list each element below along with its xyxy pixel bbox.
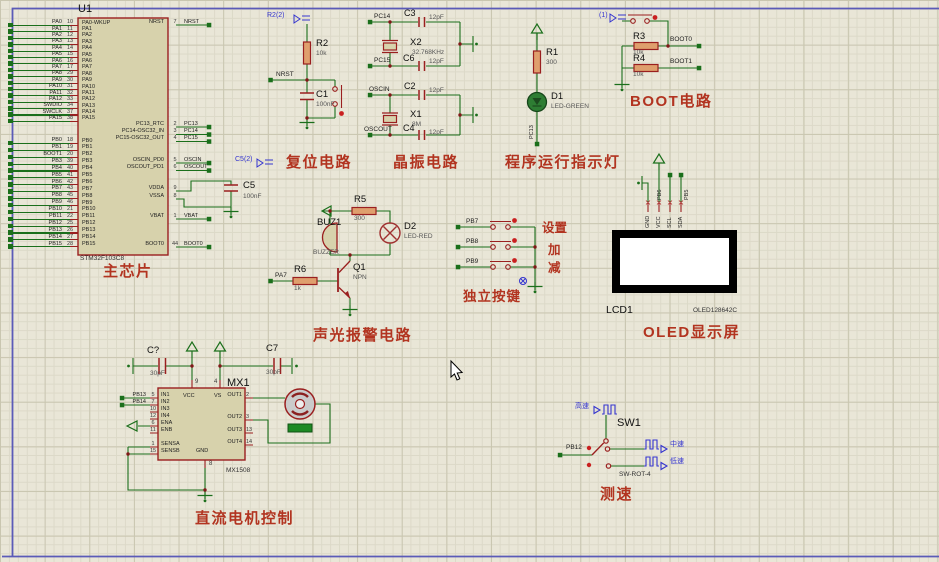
capacitor-c2-ref: C2 xyxy=(404,82,416,91)
resistor-r6 xyxy=(293,278,317,285)
pin-number: 41 xyxy=(63,172,77,178)
net-label: PB14 xyxy=(20,234,62,240)
pin-name: PB12 xyxy=(82,220,95,226)
net-label-pc13-vertical: PC13 xyxy=(529,125,535,139)
pin-number: 43 xyxy=(63,185,77,191)
led-d1-ref: D1 xyxy=(551,92,563,102)
speed-label-high: 高速 xyxy=(575,403,589,410)
pin-number: 21 xyxy=(63,206,77,212)
capacitor-c4 xyxy=(419,130,425,140)
chip-right-row: VSSA8 xyxy=(88,193,228,201)
section-title-alarm: 声光报警电路 xyxy=(313,328,412,344)
capacitor-c3 xyxy=(419,17,425,27)
transistor-q1-val: NPN xyxy=(353,275,367,282)
section-title-speed: 测速 xyxy=(600,487,633,503)
pin-number: 32 xyxy=(63,90,77,96)
chip-pa-rows: PA0 10 PA0-WKUP PA1 11 PA1 PA2 12 PA2 PA… xyxy=(8,21,168,123)
net-label-oled-scl: PB6 xyxy=(657,190,663,200)
crystal-x2-val: 32.768KHz xyxy=(412,50,444,57)
motor-label-plate xyxy=(288,424,312,432)
chip-mx1-part: MX1508 xyxy=(226,468,250,475)
origin-marker xyxy=(520,278,527,285)
net-label: BOOT1 xyxy=(20,151,62,157)
resistor-r5-ref: R5 xyxy=(354,195,366,205)
net-label: PB1 xyxy=(20,144,62,150)
net-label: PA7 xyxy=(20,64,62,70)
resistor-r3-ref: R3 xyxy=(633,32,645,42)
chip-part: STM32F103C8 xyxy=(80,256,124,263)
pin-name: PA7 xyxy=(82,64,92,70)
net-label: PB8 xyxy=(20,192,62,198)
mx1-gnd-num: 8 xyxy=(209,461,212,467)
chip-right-row: OSCOUT_PD16OSCOUT xyxy=(88,164,228,172)
wire-flag-r2: R2(2) xyxy=(267,12,285,19)
pin-number: 16 xyxy=(63,58,77,64)
crystal-x1-ref: X1 xyxy=(410,110,422,120)
mx1-pin-row: OUT313 xyxy=(200,427,260,434)
schematic-canvas[interactable]: U1 STM32F103C8 主芯片 PA0 10 PA0-WKUP PA1 1… xyxy=(0,0,939,562)
net-label: PB6 xyxy=(20,179,62,185)
chip-right-row: NRST7NRST xyxy=(88,19,228,27)
net-label: PA8 xyxy=(20,70,62,76)
net-label: PB7 xyxy=(20,185,62,191)
capacitor-c1-val: 100nF xyxy=(316,102,334,109)
wave-mid-speed-icon xyxy=(644,440,659,449)
pin-number: 22 xyxy=(63,213,77,219)
mx1-vcc-num: 9 xyxy=(195,379,198,385)
section-title-chip: 主芯片 xyxy=(103,264,153,280)
net-label: PB10 xyxy=(20,206,62,212)
led-d2-ref: D2 xyxy=(404,222,416,232)
pin-name: PA8 xyxy=(82,71,92,77)
switch-sw1-part: SW-ROT-4 xyxy=(619,472,651,479)
oled-module[interactable] xyxy=(612,201,737,294)
pin-number: 19 xyxy=(63,144,77,150)
resistor-r1 xyxy=(534,51,541,73)
push-buttons[interactable] xyxy=(333,15,658,269)
mx1-pin-row: 15SENSB xyxy=(118,448,198,455)
net-label-boot1: BOOT1 xyxy=(670,59,692,66)
pin-name: PB13 xyxy=(82,227,95,233)
net-label: PA10 xyxy=(20,83,62,89)
led-d2-val: LED-RED xyxy=(404,234,433,241)
section-title-crystal: 晶振电路 xyxy=(393,155,459,171)
chip-right-row: PC15-OSC32_OUT4PC15 xyxy=(88,135,228,143)
buzzer-val: BUZZER xyxy=(313,250,339,257)
led-d1[interactable] xyxy=(528,93,547,112)
signal-wave-icons xyxy=(594,405,667,470)
resistor-r4-ref: R4 xyxy=(633,54,645,64)
pin-number: 30 xyxy=(63,77,77,83)
buzzer-ref: BUZ1 xyxy=(317,218,341,228)
net-label-nrst: NRST xyxy=(276,72,294,79)
net-label: PB13 xyxy=(20,227,62,233)
section-title-motor: 直流电机控制 xyxy=(195,511,294,527)
capacitor-c4-ref: C4 xyxy=(403,124,415,133)
chip-mx1-ref: MX1 xyxy=(227,378,250,390)
oled-screen-area xyxy=(620,238,729,285)
section-title-indicator: 程序运行指示灯 xyxy=(505,155,621,171)
net-label-pb8: PB8 xyxy=(466,239,478,246)
net-label-pb12: PB12 xyxy=(566,445,582,452)
pin-name: PA10 xyxy=(82,84,95,90)
capacitor-c5-ref: C5 xyxy=(243,181,255,191)
wave-low-speed-icon xyxy=(644,457,659,466)
chip-right-row: BOOT044BOOT0 xyxy=(88,241,228,249)
pin-number: 33 xyxy=(63,96,77,102)
key-label-minus: 减 xyxy=(548,262,561,275)
oled-pin-vcc: VCC xyxy=(656,216,662,228)
button-minus xyxy=(490,258,517,269)
button-plus xyxy=(490,238,517,249)
pin-name: PB5 xyxy=(82,172,92,178)
pin-name: PB1 xyxy=(82,144,92,150)
net-label: PA2 xyxy=(20,32,62,38)
resistor-r6-val: 1k xyxy=(294,286,301,293)
pin-number: 10 xyxy=(63,19,77,25)
net-label: PA11 xyxy=(20,90,62,96)
pin-number: 34 xyxy=(63,102,77,108)
net-label: PB12 xyxy=(20,220,62,226)
pin-name: PA13 xyxy=(82,103,95,109)
capacitor-c7-val: 30pF xyxy=(266,370,281,377)
resistor-r2 xyxy=(304,42,311,64)
pin-number: 25 xyxy=(63,220,77,226)
pin-number: 28 xyxy=(63,241,77,247)
capacitor-c7-ref: C7 xyxy=(266,344,278,354)
motor[interactable] xyxy=(285,389,315,432)
pin-name: PA6 xyxy=(82,58,92,64)
button-boot xyxy=(628,15,657,23)
net-label: PB5 xyxy=(20,172,62,178)
net-label-oscin: OSCIN xyxy=(369,87,390,94)
speed-label-mid: 中速 xyxy=(670,441,684,448)
pin-number: 46 xyxy=(63,199,77,205)
net-label: PB3 xyxy=(20,158,62,164)
net-label: PA15 xyxy=(20,115,62,121)
pin-number: 14 xyxy=(63,45,77,51)
key-label-plus: 加 xyxy=(548,244,561,257)
chip-right-row: VDDA9 xyxy=(88,185,228,193)
pin-number: 26 xyxy=(63,227,77,233)
pin-number: 39 xyxy=(63,158,77,164)
oled-pin-scl: SCL xyxy=(667,217,673,228)
resistor-r2-ref: R2 xyxy=(316,39,328,49)
section-title-boot: BOOT电路 xyxy=(630,94,712,110)
wire-flag-boot: (1) xyxy=(599,12,608,19)
net-label: PB9 xyxy=(20,199,62,205)
mx1-vs-num: 4 xyxy=(214,379,217,385)
net-label: PA0 xyxy=(20,19,62,25)
pin-name: PA14 xyxy=(82,109,95,115)
mx1-pin-row: OUT12 xyxy=(200,392,260,399)
mx1-pin-row: 10IN3 xyxy=(118,406,198,413)
net-label: PA1 xyxy=(20,26,62,32)
section-title-keys: 独立按键 xyxy=(463,290,521,304)
net-label: PA6 xyxy=(20,58,62,64)
resistor-r1-ref: R1 xyxy=(546,48,558,58)
capacitor-c6 xyxy=(419,61,425,71)
resistor-r1-val: 300 xyxy=(546,60,557,67)
net-label-oled-sda: PB5 xyxy=(684,190,690,200)
resistor-r2-val: 10k xyxy=(316,51,326,58)
capacitor-c3-ref: C3 xyxy=(404,9,416,18)
net-label-pc14: PC14 xyxy=(374,14,390,21)
net-label-oscout: OSCOUT xyxy=(364,127,392,134)
pin-number: 45 xyxy=(63,192,77,198)
capacitor-cq-val: 30pF xyxy=(150,371,165,378)
wave-high-speed-icon xyxy=(602,405,617,414)
pin-number: 38 xyxy=(63,115,77,121)
mx1-pin-row: OUT414 xyxy=(200,439,260,446)
pin-number: 17 xyxy=(63,64,77,70)
pin-name: PA11 xyxy=(82,90,95,96)
net-label: SWCLK xyxy=(20,109,62,115)
resistor-r5 xyxy=(352,208,376,215)
pin-number: 42 xyxy=(63,179,77,185)
capacitor-c2-val: 12pF xyxy=(429,88,444,95)
speed-label-low: 低速 xyxy=(670,458,684,465)
chip-right-row: VBAT1VBAT xyxy=(88,213,228,221)
pin-number: 27 xyxy=(63,234,77,240)
net-label: PB4 xyxy=(20,165,62,171)
oled-part: OLED128642C xyxy=(693,308,737,315)
section-title-oled: OLED显示屏 xyxy=(643,325,740,341)
pin-number: 11 xyxy=(63,26,77,32)
key-label-set: 设置 xyxy=(542,222,567,235)
net-label: PA5 xyxy=(20,51,62,57)
pin-name: PA4 xyxy=(82,45,92,51)
crystal-x2-ref: X2 xyxy=(410,38,422,48)
pin-number: 15 xyxy=(63,51,77,57)
pin-name: PB10 xyxy=(82,206,95,212)
button-reset xyxy=(333,85,344,116)
capacitor-cq-ref: C? xyxy=(147,346,159,356)
capacitor-c1-ref: C1 xyxy=(316,90,328,100)
resistor-r4-val: 10k xyxy=(633,72,643,79)
mx1-pin-row: PB147IN2 xyxy=(118,399,198,406)
capacitor-c5-val: 100nF xyxy=(243,194,261,201)
pin-number: 18 xyxy=(63,137,77,143)
net-label: PA4 xyxy=(20,45,62,51)
resistor-r6-ref: R6 xyxy=(294,265,306,275)
net-label-pb9: PB9 xyxy=(466,259,478,266)
pin-number: 40 xyxy=(63,165,77,171)
mouse-cursor xyxy=(451,361,462,380)
pin-number: 13 xyxy=(63,38,77,44)
transistor-q1-ref: Q1 xyxy=(353,263,366,273)
pin-name: PA12 xyxy=(82,96,95,102)
pin-name: PA5 xyxy=(82,52,92,58)
chip-ref: U1 xyxy=(78,4,92,16)
resistor-r5-val: 300 xyxy=(354,216,365,223)
button-set xyxy=(490,218,517,229)
net-label: PB0 xyxy=(20,137,62,143)
oled-ref: LCD1 xyxy=(606,305,633,316)
capacitor-c6-ref: C6 xyxy=(403,54,415,63)
pin-number: 31 xyxy=(63,83,77,89)
capacitor-c4-val: 12pF xyxy=(429,130,444,137)
mx1-pin-row: 1SENSA xyxy=(118,441,198,448)
pin-name: PA1 xyxy=(82,26,92,32)
net-label: PA3 xyxy=(20,38,62,44)
wire-flag-c5: C5(2) xyxy=(235,156,253,163)
capacitor-c1 xyxy=(300,93,314,100)
pin-name: PB14 xyxy=(82,234,95,240)
pin-name: PA9 xyxy=(82,77,92,83)
led-d2[interactable] xyxy=(380,223,400,243)
led-d1-val: LED-GREEN xyxy=(551,104,589,111)
pin-number: 29 xyxy=(63,70,77,76)
pin-number: 37 xyxy=(63,109,77,115)
pin-name: PA2 xyxy=(82,32,92,38)
rotary-switch-sw1[interactable] xyxy=(587,439,611,468)
pin-number: 20 xyxy=(63,151,77,157)
capacitor-c6-val: 12pF xyxy=(429,59,444,66)
capacitor-c3-val: 12pF xyxy=(429,15,444,22)
mx1-pin-row: 6ENA xyxy=(118,420,198,427)
oled-pin-gnd: GND xyxy=(645,216,651,228)
net-label: SWDIO xyxy=(20,102,62,108)
pin-number: 12 xyxy=(63,32,77,38)
switch-sw1-ref: SW1 xyxy=(617,418,641,430)
section-title-reset: 复位电路 xyxy=(286,155,352,171)
transistor-q1[interactable] xyxy=(338,261,350,298)
crystal-x1 xyxy=(382,113,398,125)
net-label-pc15: PC15 xyxy=(374,58,390,65)
mx1-pin-row: OUT23 xyxy=(200,414,260,421)
mx1-pin-row: PB135IN1 xyxy=(118,392,198,399)
net-label-pb7: PB7 xyxy=(466,219,478,226)
net-label-pa7: PA7 xyxy=(275,273,287,280)
mx1-pin-row: 11ENB xyxy=(118,427,198,434)
net-label: PB15 xyxy=(20,241,62,247)
pin-name: PA3 xyxy=(82,39,92,45)
crystal-x2 xyxy=(382,41,398,53)
net-label: PA12 xyxy=(20,96,62,102)
net-label: PB11 xyxy=(20,213,62,219)
mx1-pin-row: 12IN4 xyxy=(118,413,198,420)
capacitor-c2 xyxy=(419,90,425,100)
oled-pin-sda: SDA xyxy=(678,217,684,228)
net-label-boot0: BOOT0 xyxy=(670,37,692,44)
net-label: PA9 xyxy=(20,77,62,83)
